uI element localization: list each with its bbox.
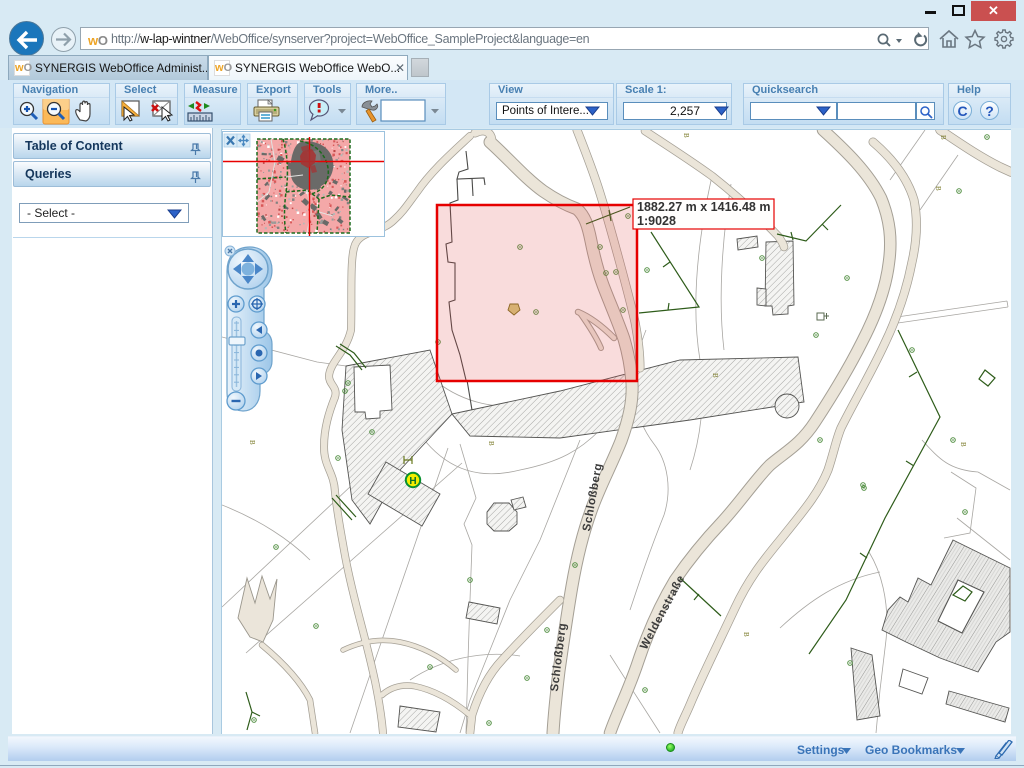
svg-text:B: B [248, 440, 256, 445]
svg-text:B: B [711, 373, 719, 378]
svg-text:B: B [934, 186, 942, 191]
svg-text:1882.27 m x 1416.48 m: 1882.27 m x 1416.48 m [637, 200, 770, 214]
svg-text:1:9028: 1:9028 [637, 214, 676, 228]
svg-text:B: B [959, 442, 967, 447]
svg-text:B: B [939, 135, 947, 140]
svg-text:B: B [487, 441, 495, 446]
svg-text:B: B [742, 632, 750, 637]
svg-text:H: H [409, 476, 416, 487]
svg-text:B: B [682, 133, 690, 138]
